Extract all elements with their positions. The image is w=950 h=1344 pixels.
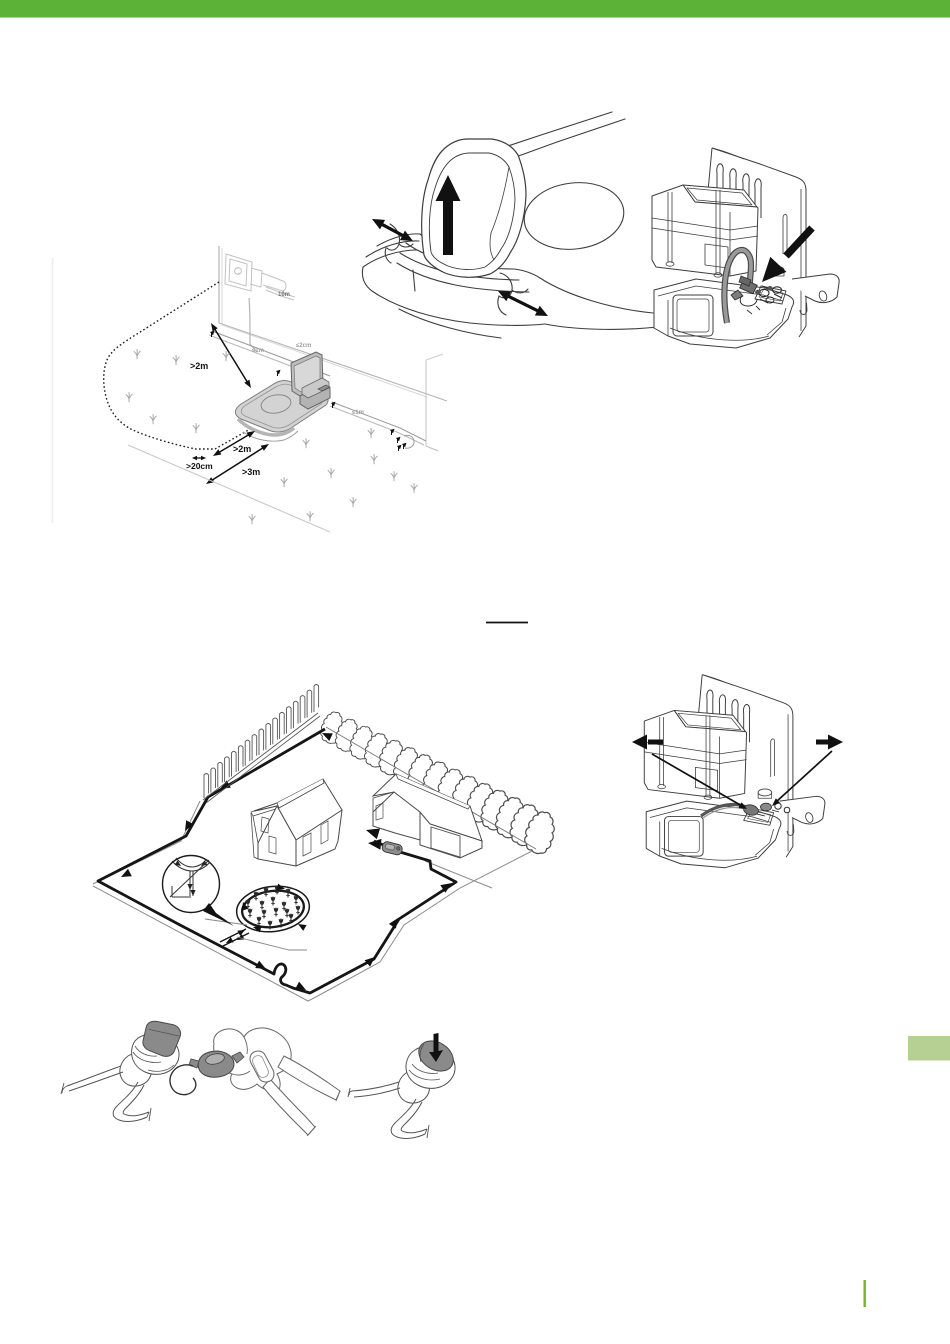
svg-text:>2m: >2m (233, 444, 251, 454)
svg-text:>2m: >2m (190, 361, 208, 371)
svg-text:≤2cm: ≤2cm (296, 343, 311, 349)
svg-text:>3m: >3m (242, 467, 260, 477)
svg-text:≤1m: ≤1m (352, 410, 364, 416)
svg-text:>20cm: >20cm (186, 461, 213, 471)
svg-text:≤1m: ≤1m (252, 348, 264, 354)
svg-text:10m: 10m (278, 292, 290, 298)
